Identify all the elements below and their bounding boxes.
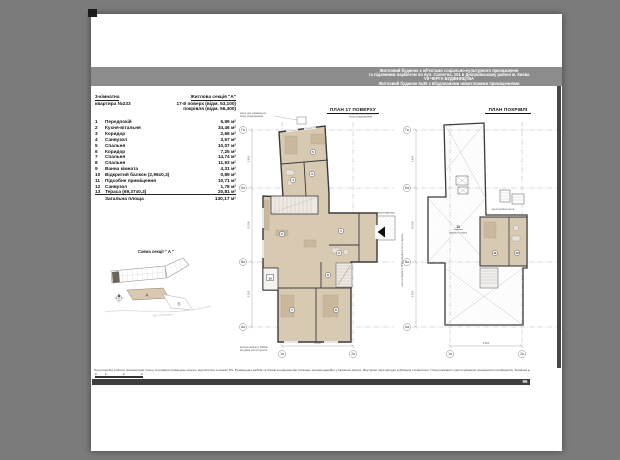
- header-line-4: Житловий будинок №35 з вбудованими нежит…: [339, 82, 559, 86]
- sheet-edge-bar: [557, 86, 561, 368]
- footer-bar: 96: [92, 379, 530, 386]
- svg-text:покриття тераси: покриття тераси: [449, 232, 468, 235]
- page-corner-mark: [88, 9, 97, 17]
- sheet-page: Житловий будинок з об'єктами соціально-к…: [91, 14, 562, 451]
- svg-text:висота парапету 300мм від рівн: висота парапету 300мм від рівня чистої п…: [401, 233, 404, 287]
- table-row: 11Підсобне приміщення10,71 м²: [95, 177, 236, 183]
- ac-unit-box: [297, 117, 306, 124]
- building-outline: [111, 258, 189, 283]
- svg-text:Аа: Аа: [241, 325, 245, 329]
- table-row: 13Тераса (69,37х0,3)20,81 м²: [95, 189, 236, 195]
- roof-plan-drawing: 1.400 10.500 5.300 9.400: [400, 110, 570, 366]
- section-info-block: Житлова секція "А" 17-й поверх (відм. 53…: [147, 94, 236, 112]
- page-number: 96: [522, 379, 527, 386]
- apartment-outline: [263, 116, 395, 342]
- dim-left-1: 1.400: [411, 155, 415, 162]
- screenshot-root: { "colors": { "background": "#7b7b7b", "…: [0, 0, 620, 460]
- svg-text:блоку кондиціонера: блоку кондиціонера: [240, 115, 264, 118]
- svg-text:Ба: Ба: [405, 186, 409, 190]
- svg-text:1а: 1а: [448, 352, 452, 356]
- svg-text:вхід в квартиру: вхід в квартиру: [377, 212, 395, 215]
- compass-icon: [115, 294, 124, 303]
- table-row: 7Спальня14,74 м²: [95, 154, 236, 160]
- apartment-type-block: 3-кімнатна квартира №233: [95, 94, 147, 106]
- schema-title: Схема секції " А ": [121, 249, 191, 254]
- svg-text:2а: 2а: [520, 352, 524, 356]
- dim-left-2: 10.500: [411, 220, 415, 228]
- svg-text:вентиляційна шахта: вентиляційна шахта: [492, 208, 515, 211]
- street-line: [105, 306, 211, 312]
- svg-text:12: 12: [515, 251, 519, 255]
- table-row: 6Коридор7,25 м²: [95, 148, 236, 154]
- svg-text:11: 11: [493, 251, 497, 255]
- section-a-marker: [112, 271, 120, 283]
- svg-text:Га: Га: [241, 128, 245, 132]
- apartment-number: квартира №233: [95, 101, 147, 106]
- footer-note-text: При розробці робочої документації площі …: [94, 368, 530, 372]
- dim-left-2: 10.500: [247, 220, 251, 228]
- dim-left-1: 1.400: [247, 155, 251, 162]
- svg-text:13: 13: [456, 225, 460, 229]
- svg-text:Ва: Ва: [241, 260, 245, 264]
- project-header-text: Житловий будинок з об'єктами соціально-к…: [339, 69, 559, 87]
- table-row: 8Спальня11,93 м²: [95, 160, 236, 166]
- svg-text:Ба: Ба: [241, 186, 245, 190]
- table-row: 2Кухня-вітальня34,46 м²: [95, 125, 236, 131]
- dim-bottom: 9.400: [483, 341, 490, 345]
- table-row: 3Коридор2,66 м²: [95, 131, 236, 137]
- total-label: Загальна площа: [95, 197, 215, 202]
- svg-text:блоку кондиціонера: блоку кондиціонера: [349, 116, 373, 119]
- roof-outline: [428, 123, 527, 325]
- table-row: 1Передпокій6,99 м²: [95, 119, 236, 125]
- section-blocks: А Б: [127, 288, 193, 310]
- dim-left-3: 5.300: [247, 290, 251, 297]
- table-row: 5Спальня10,07 м²: [95, 142, 236, 148]
- svg-text:Аа: Аа: [405, 325, 409, 329]
- area-table: 1Передпокій6,99 м² 2Кухня-вітальня34,46 …: [95, 119, 236, 202]
- table-row: 4Санвузол3,57 м²: [95, 137, 236, 143]
- table-row: 9Ванна кімната4,31 м²: [95, 166, 236, 172]
- svg-text:1а: 1а: [280, 352, 284, 356]
- project-header-band: Житловий будинок з об'єктами соціально-к…: [91, 67, 562, 86]
- section-label: Житлова секція "А": [191, 94, 236, 101]
- svg-text:2а: 2а: [351, 352, 355, 356]
- svg-text:Ва: Ва: [405, 260, 409, 264]
- graphic-scale-bar: [95, 376, 143, 378]
- total-value: 130,17 м²: [215, 197, 236, 202]
- svg-text:Га: Га: [405, 128, 409, 132]
- roof-label: покрівля (відм. 56,400): [147, 106, 236, 111]
- floor-plan-drawing: 1.400 10.500 5.300 8.500: [236, 110, 406, 366]
- svg-text:від рівня чистої підлоги: від рівня чистої підлоги: [240, 349, 268, 352]
- svg-text:10: 10: [268, 276, 272, 280]
- footer-note: При розробці робочої документації площі …: [94, 368, 530, 372]
- table-total-row: Загальна площа130,17 м²: [95, 197, 236, 202]
- table-row: 10Відкритий балкон (2,96х0,3)0,89 м²: [95, 172, 236, 178]
- dim-left-3: 5.300: [411, 290, 415, 297]
- section-schema-drawing: А Б вул. Салютна: [103, 255, 215, 319]
- street-label: вул. Салютна: [153, 312, 173, 317]
- apartment-type: 3-кімнатна: [95, 94, 119, 101]
